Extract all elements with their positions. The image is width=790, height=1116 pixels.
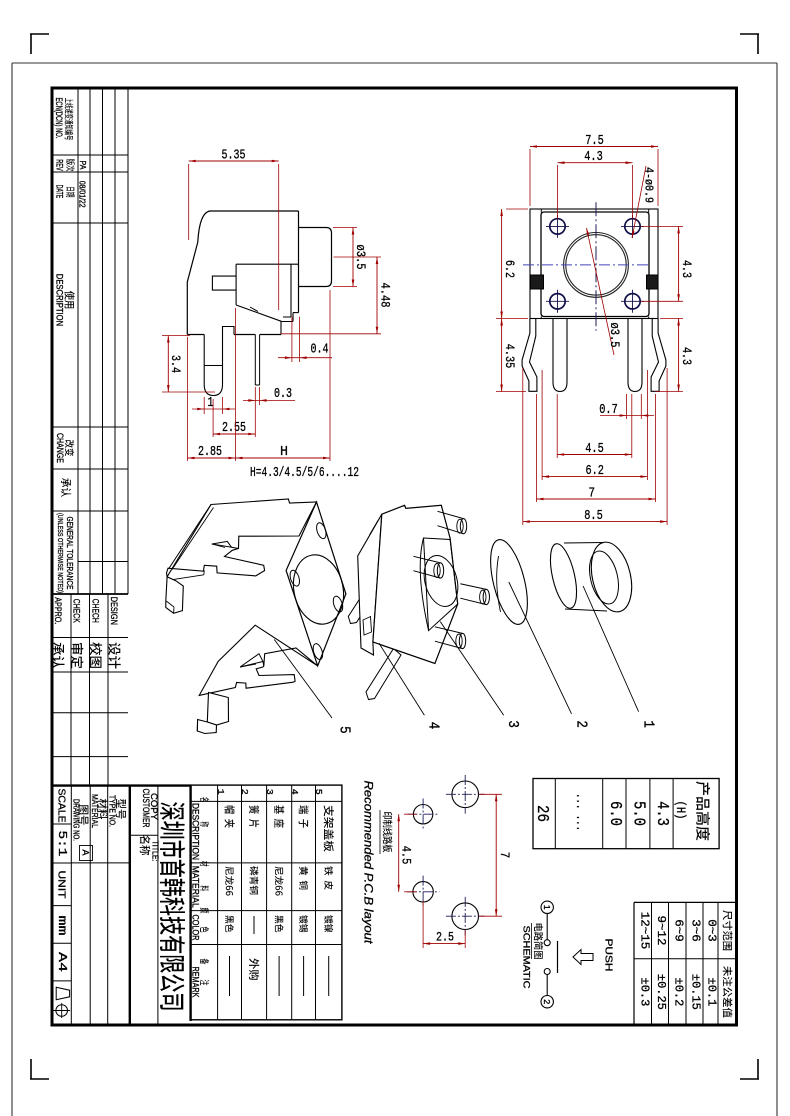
svg-text:3: 3 [504, 720, 521, 728]
svg-text:2: 2 [542, 999, 552, 1004]
svg-text:2: 2 [572, 720, 589, 728]
svg-text:MATERIAL: MATERIAL [190, 866, 201, 908]
svg-text:MATERIAL: MATERIAL [90, 794, 100, 828]
svg-text:(UNLESS OTHERWISE NOTED): (UNLESS OTHERWISE NOTED) [56, 513, 65, 593]
svg-text:... ...: ... ... [573, 793, 588, 831]
svg-text:5:1: 5:1 [55, 831, 69, 857]
svg-text:6~9: 6~9 [671, 919, 685, 942]
svg-text:4.5: 4.5 [585, 441, 604, 457]
svg-text:PA: PA [78, 161, 87, 170]
svg-text:5.35: 5.35 [222, 148, 246, 164]
svg-text:UNIT: UNIT [55, 871, 67, 900]
svg-text:SCALE: SCALE [55, 789, 67, 823]
svg-text:4.5: 4.5 [398, 846, 413, 865]
svg-text:GENERAL TOLERANCE: GENERAL TOLERANCE [65, 517, 75, 590]
svg-text:7.5: 7.5 [585, 133, 604, 149]
svg-text:COPY: COPY [148, 793, 159, 821]
svg-text:8.5: 8.5 [584, 508, 603, 524]
svg-text:1: 1 [639, 720, 656, 728]
svg-text:1: 1 [542, 905, 552, 910]
svg-text:5: 5 [313, 789, 323, 795]
svg-text:±0.1: ±0.1 [704, 978, 718, 1007]
svg-text:4.3: 4.3 [584, 149, 603, 165]
svg-text:0.4: 0.4 [311, 342, 329, 358]
svg-text:4: 4 [424, 722, 441, 730]
svg-text:±0.3: ±0.3 [637, 978, 651, 1007]
svg-text:CHECK: CHECK [71, 599, 82, 623]
svg-text:4.35: 4.35 [502, 344, 517, 369]
svg-text:4.3: 4.3 [652, 801, 671, 826]
svg-text:A4: A4 [55, 952, 69, 972]
svg-text:SCHEMATIC: SCHEMATIC [520, 926, 531, 989]
svg-text:ECN(DCN) NO.: ECN(DCN) NO. [54, 98, 64, 139]
svg-text:4.3: 4.3 [679, 347, 694, 365]
svg-text:H: H [280, 444, 288, 460]
svg-text:±0.2: ±0.2 [671, 978, 685, 1007]
svg-text:4.48: 4.48 [377, 283, 392, 308]
svg-text:3: 3 [264, 789, 274, 795]
svg-text:2.85: 2.85 [198, 444, 222, 460]
svg-text:Recommended P.C.B layout: Recommended P.C.B layout [362, 781, 376, 945]
svg-text:08/01/22: 08/01/22 [77, 181, 86, 208]
svg-text:mm: mm [55, 916, 69, 936]
svg-text:6.2: 6.2 [585, 463, 604, 479]
svg-text:REMARK: REMARK [190, 967, 201, 998]
svg-text:3~6: 3~6 [688, 919, 702, 942]
svg-text:2: 2 [239, 789, 249, 795]
svg-text:0~3: 0~3 [704, 919, 718, 942]
svg-text:DRAWING NO.: DRAWING NO. [71, 799, 81, 841]
svg-text:DATE: DATE [54, 185, 64, 198]
svg-text:(H): (H) [673, 801, 688, 820]
svg-text:DESCRIPTION: DESCRIPTION [54, 274, 65, 327]
svg-text:DESIGN: DESIGN [108, 597, 119, 625]
svg-text:7: 7 [497, 852, 512, 859]
svg-text:APPRO.: APPRO. [52, 597, 63, 624]
svg-text:5: 5 [336, 726, 353, 734]
svg-text:6.2: 6.2 [502, 260, 517, 278]
svg-text:6.0: 6.0 [605, 801, 624, 826]
svg-text:COLOR: COLOR [190, 915, 201, 941]
svg-text:9~12: 9~12 [654, 916, 668, 946]
svg-text:±0.25: ±0.25 [654, 974, 668, 1010]
svg-text:1: 1 [215, 789, 225, 795]
svg-text:26: 26 [532, 805, 551, 822]
svg-text:H=4.3/4.5/5/6....12: H=4.3/4.5/5/6....12 [250, 466, 359, 481]
svg-text:0.3: 0.3 [274, 386, 292, 402]
svg-text:DESCRIPTION: DESCRIPTION [190, 803, 201, 860]
svg-text:4.3: 4.3 [679, 260, 694, 278]
svg-text:REV: REV [54, 159, 64, 171]
svg-text:2.55: 2.55 [222, 420, 246, 436]
svg-text:1: 1 [208, 395, 214, 411]
svg-text:A: A [81, 850, 91, 856]
svg-text:ø3.5: ø3.5 [607, 323, 622, 348]
svg-text:12~15: 12~15 [637, 912, 651, 950]
svg-text:0.7: 0.7 [599, 402, 618, 418]
svg-text:±0.15: ±0.15 [688, 974, 702, 1010]
svg-text:TITLE:: TITLE: [150, 841, 160, 862]
svg-text:CHANGE: CHANGE [55, 433, 65, 463]
svg-text:TYPE NO.: TYPE NO. [107, 795, 117, 827]
svg-text:4: 4 [289, 789, 299, 795]
svg-text:PUSH: PUSH [602, 939, 614, 972]
svg-text:CHECH: CHECH [89, 599, 100, 623]
svg-text:3.4: 3.4 [168, 355, 183, 373]
svg-text:4-ø0.9: 4-ø0.9 [641, 167, 655, 203]
svg-text:7: 7 [589, 486, 596, 502]
svg-text:2.5: 2.5 [436, 930, 454, 945]
svg-text:5.0: 5.0 [629, 801, 648, 826]
